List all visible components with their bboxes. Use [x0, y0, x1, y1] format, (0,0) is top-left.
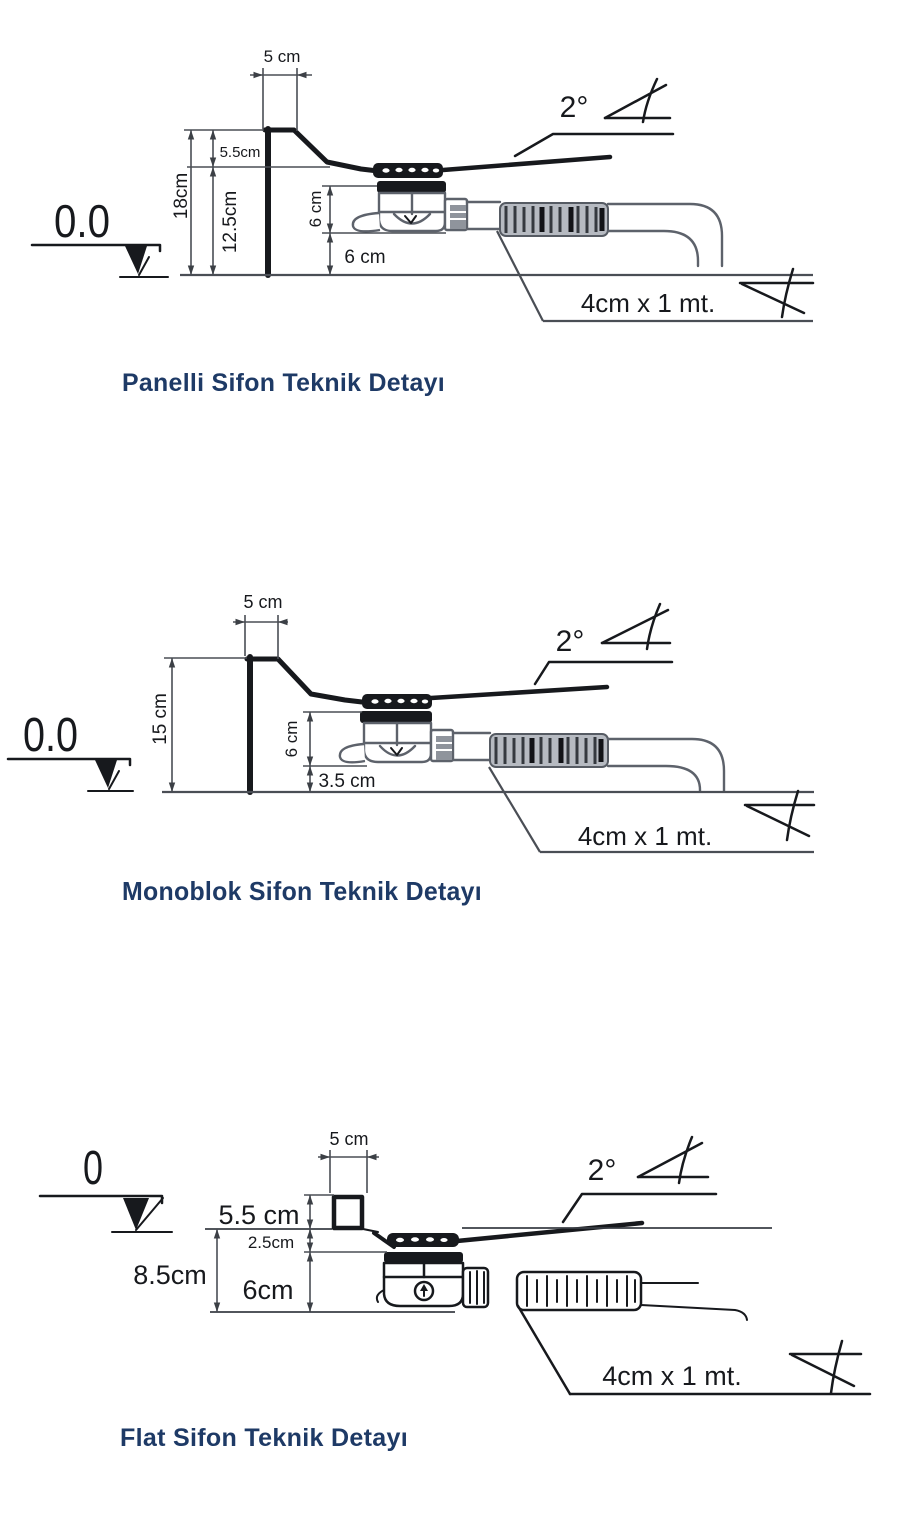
slope-callout: 2°	[535, 604, 672, 684]
drain-pipe-label: 4cm x 1 mt.	[581, 288, 715, 318]
datum-level-label: 0.0	[54, 195, 110, 247]
dim-lower-height: 12.5cm	[220, 191, 241, 253]
flat-title: Flat Sifon Teknik Detayı	[120, 1424, 408, 1452]
siphon-assembly	[353, 163, 500, 231]
slope-symbol-top	[602, 604, 670, 649]
monoblok-diagram: 0.0	[8, 592, 814, 906]
dim-recess-depth: 2.5cm	[248, 1233, 294, 1252]
panelli-title: Panelli Sifon Teknik Detayı	[122, 369, 445, 397]
dim-wall-top-width: 5 cm	[264, 47, 301, 66]
flat-diagram: 0	[40, 1129, 870, 1452]
siphon-assembly	[377, 1233, 488, 1307]
slope-symbol-bottom	[790, 1341, 861, 1393]
slope-angle-label: 2°	[556, 625, 585, 658]
slope-symbol-top	[638, 1137, 708, 1183]
drain-pipe-label: 4cm x 1 mt.	[602, 1361, 742, 1391]
dim-siphon-height: 6 cm	[282, 721, 301, 758]
flexible-hose	[517, 1272, 747, 1320]
dim-total-depth: 8.5cm	[133, 1260, 207, 1290]
panelli-diagram: 0.0	[32, 47, 813, 397]
drain-pipe-label: 4cm x 1 mt.	[578, 821, 712, 851]
slope-symbol-bottom	[740, 269, 813, 317]
diagram-canvas: 0.0	[0, 0, 900, 1535]
flexible-hose	[500, 203, 722, 266]
dim-siphon-height: 6 cm	[306, 191, 325, 228]
monoblok-title: Monoblok Sifon Teknik Detayı	[122, 876, 482, 906]
siphon-assembly	[340, 694, 490, 762]
slope-callout: 2°	[515, 79, 673, 156]
slope-angle-label: 2°	[588, 1154, 617, 1187]
dim-floor-clearance: 3.5 cm	[318, 771, 375, 792]
dim-curb-width: 5 cm	[329, 1129, 368, 1149]
dim-curb-height: 5.5 cm	[218, 1200, 299, 1230]
slope-angle-label: 2°	[560, 91, 589, 124]
dimensions: 5 cm 18cm 5.5cm 12.5cm 6 cm 6 cm	[171, 47, 446, 275]
datum-symbol: 0	[40, 1142, 172, 1232]
technical-sheet: 0.0	[0, 0, 900, 1535]
dimensions: 5 cm 15 cm 6 cm 3.5 cm	[150, 592, 376, 792]
floor-and-pipe-label: 4cm x 1 mt.	[162, 767, 814, 852]
floor-and-pipe-label: 4cm x 1 mt.	[180, 231, 813, 321]
datum-symbol: 0.0	[8, 709, 133, 791]
dim-siphon-height: 6cm	[242, 1275, 293, 1305]
dim-total-height: 15 cm	[150, 693, 171, 745]
slope-symbol-bottom	[745, 791, 814, 840]
dim-total-height: 18cm	[171, 173, 192, 219]
dim-wall-top-width: 5 cm	[243, 592, 282, 612]
datum-symbol: 0.0	[32, 195, 168, 277]
slope-symbol-top	[605, 79, 670, 122]
datum-level-label: 0	[83, 1142, 103, 1195]
dim-floor-clearance: 6 cm	[344, 247, 385, 268]
datum-level-label: 0.0	[23, 709, 78, 762]
floor-and-pipe-label: 4cm x 1 mt.	[518, 1306, 870, 1394]
dimensions: 5 cm 5.5 cm 2.5cm 6cm 8.5cm	[133, 1129, 455, 1312]
dim-upper-height: 5.5cm	[220, 144, 261, 161]
flexible-hose	[490, 734, 724, 791]
slope-callout: 2°	[563, 1137, 716, 1222]
